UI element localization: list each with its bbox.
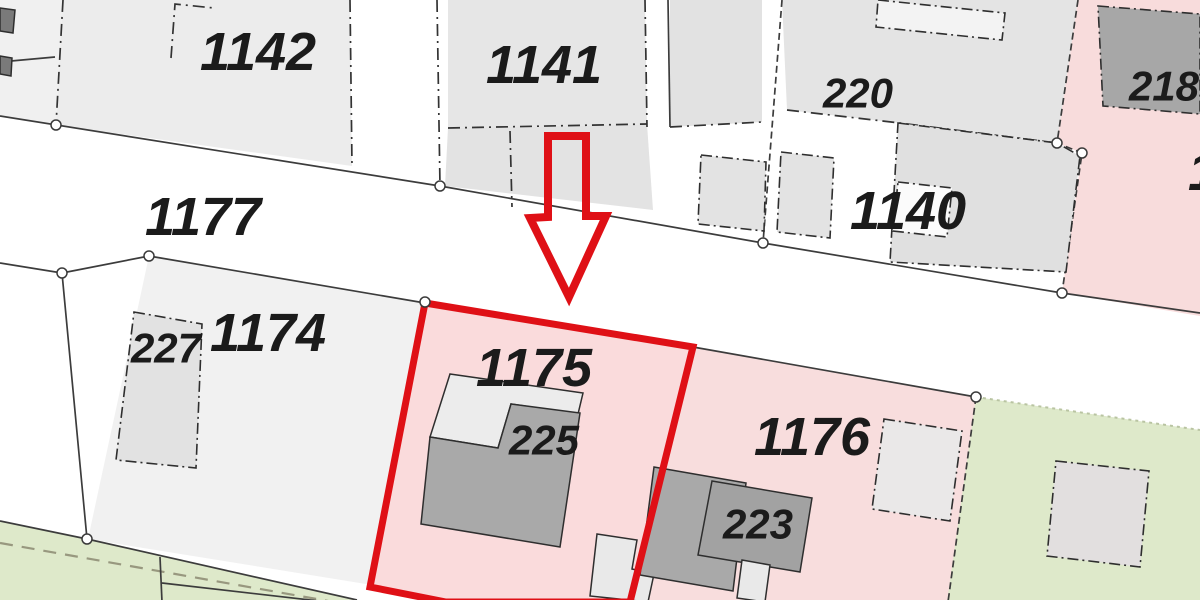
survey-point	[144, 251, 154, 261]
survey-point	[82, 534, 92, 544]
building-label-227: 227	[130, 325, 203, 372]
cadastral-map: 1142 1141 220 218 1 1140 1177 1174 227 1…	[0, 0, 1200, 600]
building-middle-1	[698, 155, 766, 231]
building-edge-fragment-1	[0, 8, 15, 33]
parcel-label-1141: 1141	[486, 35, 602, 95]
survey-point	[435, 181, 445, 191]
parcel-small-top-middle[interactable]	[670, 0, 762, 127]
survey-point	[1052, 138, 1062, 148]
survey-point	[57, 268, 67, 278]
building-middle-2	[777, 152, 834, 238]
survey-point	[51, 120, 61, 130]
parcel-label-partial: 1	[1188, 142, 1200, 202]
survey-point	[758, 238, 768, 248]
building-label-225: 225	[508, 417, 580, 464]
building-label-223: 223	[722, 501, 793, 548]
building-edge-fragment-2	[0, 56, 12, 76]
parcel-label-1140: 1140	[850, 181, 966, 241]
building-label-220: 220	[822, 70, 893, 117]
parcel-label-1142: 1142	[200, 22, 316, 82]
survey-point	[420, 297, 430, 307]
survey-point	[1057, 288, 1067, 298]
survey-point	[971, 392, 981, 402]
building-223-shed	[737, 560, 770, 600]
building-label-218: 218	[1128, 63, 1200, 110]
parcel-label-1174: 1174	[210, 303, 326, 363]
survey-point	[1077, 148, 1087, 158]
parcel-label-1175: 1175	[476, 338, 593, 398]
building-green-shed	[1047, 461, 1149, 567]
building-1176-shed	[872, 419, 962, 521]
parcel-label-1177: 1177	[145, 187, 264, 247]
parcel-label-1176: 1176	[754, 407, 871, 467]
